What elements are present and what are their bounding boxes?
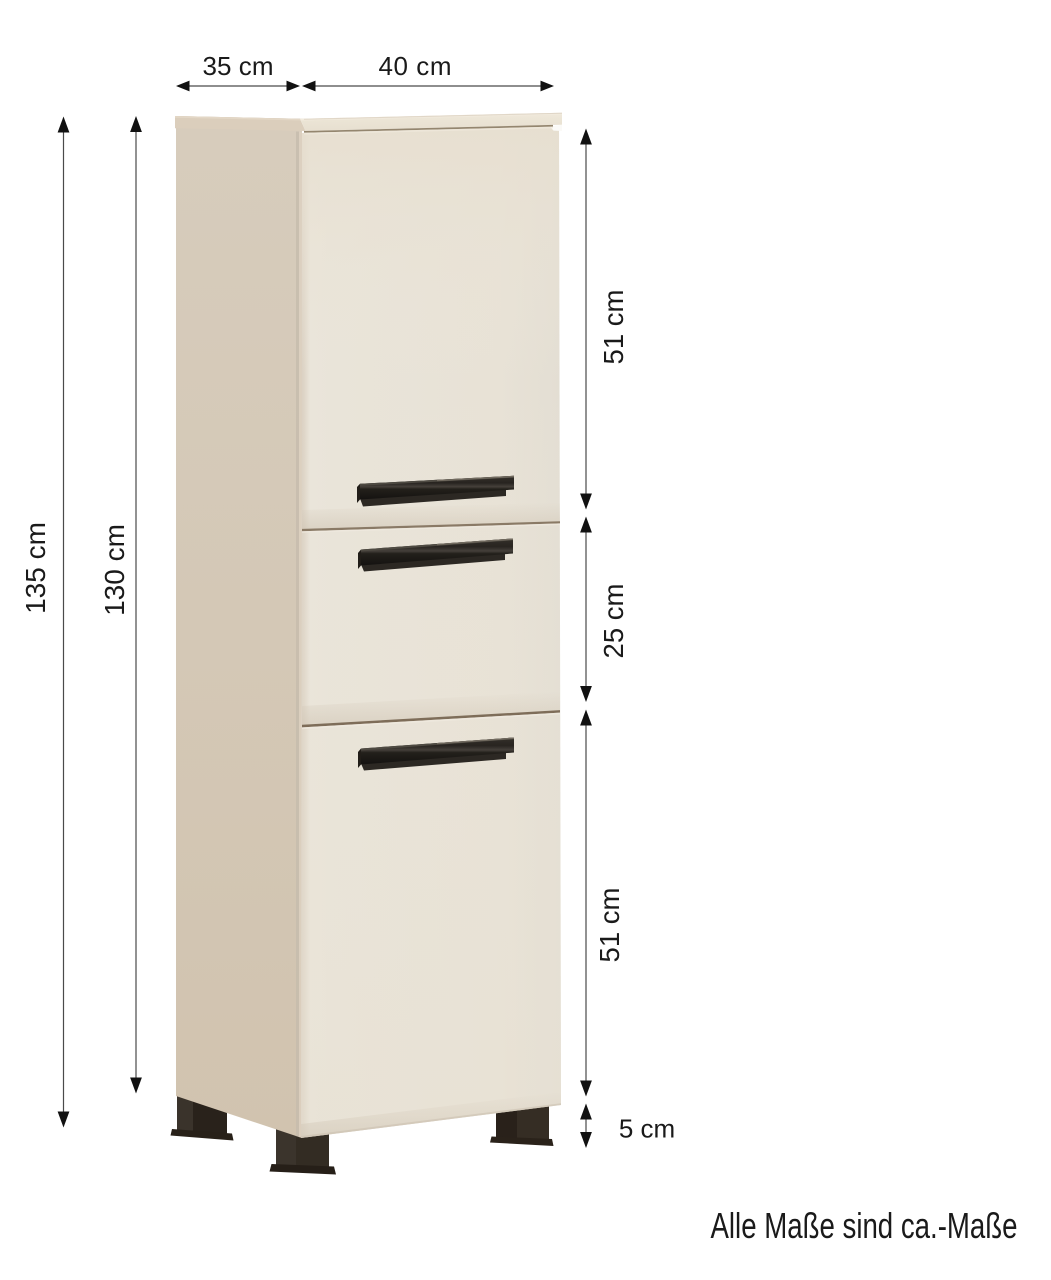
svg-text:35 cm: 35 cm (203, 51, 274, 81)
svg-text:40 cm: 40 cm (379, 51, 452, 81)
svg-text:51 cm: 51 cm (594, 888, 625, 963)
svg-text:25 cm: 25 cm (598, 584, 629, 659)
svg-text:135 cm: 135 cm (20, 522, 51, 614)
svg-text:130 cm: 130 cm (99, 524, 130, 616)
svg-text:5 cm: 5 cm (619, 1114, 675, 1144)
svg-text:Alle Maße sind ca.-Maße: Alle Maße sind ca.-Maße (711, 1205, 1018, 1246)
svg-text:51 cm: 51 cm (598, 290, 629, 365)
